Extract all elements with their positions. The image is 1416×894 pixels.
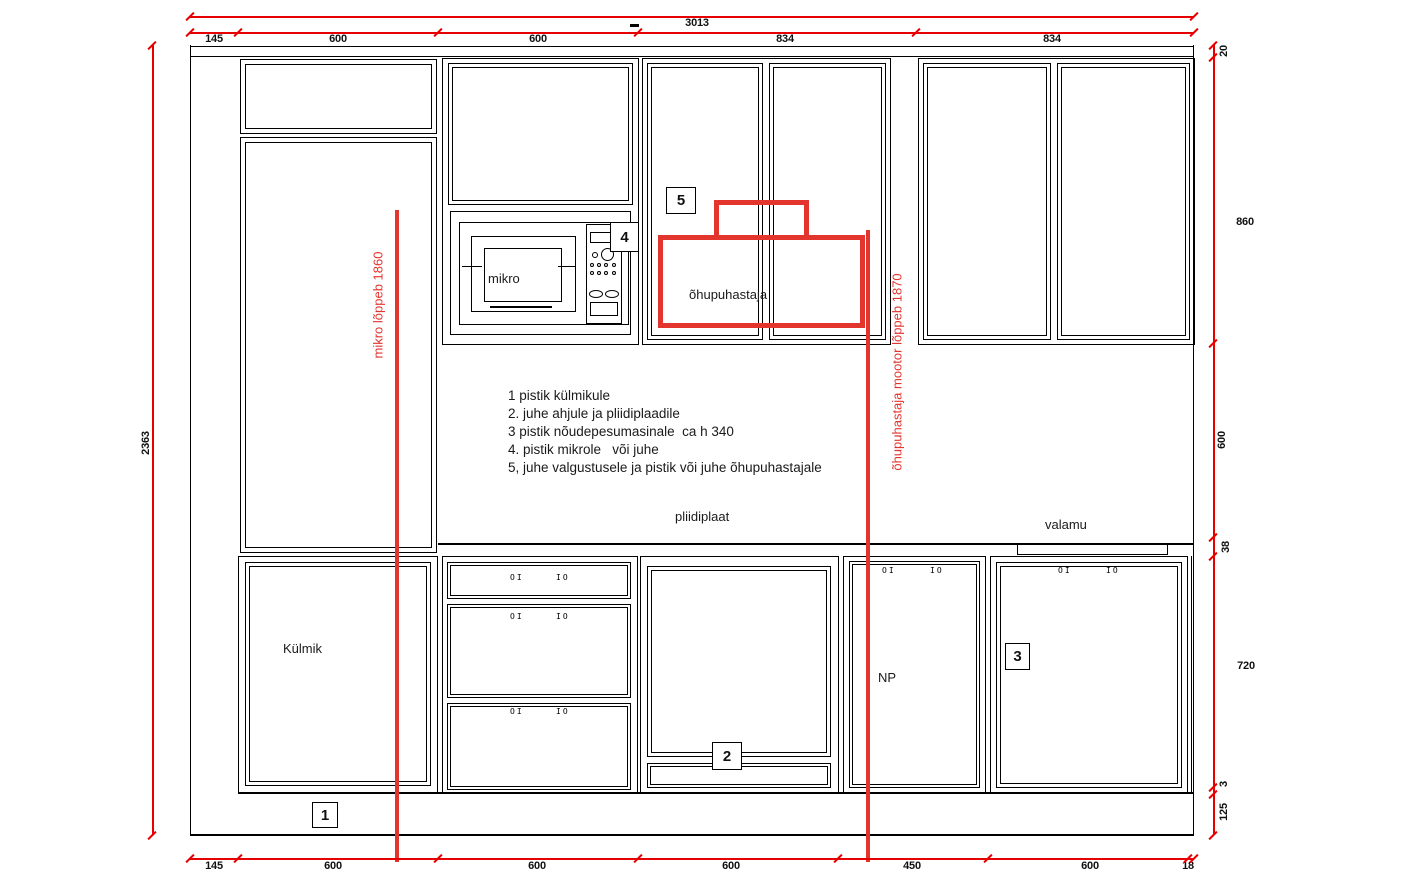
dim-right-seg: 38: [1220, 541, 1232, 553]
dim-bottom-seg: 600: [722, 860, 740, 872]
fridge-tall-door: [240, 137, 437, 553]
stray-dash: [630, 24, 639, 27]
microwave-button: [604, 271, 608, 275]
hinge-symbol: IO: [556, 573, 570, 582]
dim-right-seg: 600: [1216, 431, 1228, 449]
microwave-oval-button: [605, 290, 619, 298]
microwave-button: [590, 271, 594, 275]
hinge-symbol: IO: [556, 707, 570, 716]
callout-2: 2: [712, 742, 742, 770]
dim-bottom-seg: 600: [1081, 860, 1099, 872]
drawer-1: [447, 562, 631, 599]
microwave-trim-left: [462, 266, 482, 267]
dim-bottom-seg: 600: [324, 860, 342, 872]
floor-line: [190, 834, 1194, 836]
top-panel: [190, 46, 1194, 57]
hob-label: pliidiplaat: [675, 509, 729, 524]
callout-5: 5: [666, 187, 696, 214]
dim-top-seg: 834: [1043, 33, 1061, 45]
right-filler-line: [1191, 556, 1192, 793]
drawer-3: [447, 703, 631, 790]
plinth-line: [238, 792, 1194, 794]
dim-bottom-seg: 450: [903, 860, 921, 872]
dim-right-seg: 860: [1236, 216, 1254, 228]
hinge-symbol: OI: [510, 707, 524, 716]
dim-top-seg: 600: [529, 33, 547, 45]
dim-right-seg: 125: [1218, 803, 1230, 821]
mikro-height-line: [395, 210, 399, 862]
oven-door: [647, 566, 831, 757]
left-wall-line: [190, 45, 191, 835]
dim-line-right: [1213, 45, 1215, 835]
hood-motor-height-label: õhupuhastaja mootor lõppeb 1870: [890, 273, 905, 470]
callout-1: 1: [312, 802, 338, 828]
dim-bottom-seg: 145: [205, 860, 223, 872]
dim-top-seg: 834: [776, 33, 794, 45]
hood-chimney-outline: [714, 200, 809, 240]
microwave-label: mikro: [488, 271, 520, 286]
dim-line-left: [152, 45, 154, 835]
hinge-symbol: OI: [510, 573, 524, 582]
note-line: 3 pistik nõudepesumasinale ca h 340: [508, 424, 734, 439]
microwave-oval-button: [589, 290, 603, 298]
fridge-top-cabinet-door: [240, 59, 437, 134]
micro-column-upper-door: [448, 63, 633, 205]
upper-unit-b-door-left: [923, 63, 1051, 340]
fridge-base-door: [245, 562, 431, 786]
microwave-button: [604, 263, 608, 267]
microwave-button: [597, 271, 601, 275]
microwave-lower-panel: [590, 302, 618, 316]
dim-tick: [1208, 831, 1217, 840]
dim-tick: [147, 831, 156, 840]
fridge-label: Külmik: [283, 641, 322, 656]
note-line: 5, juhe valgustusele ja pistik või juhe …: [508, 460, 822, 475]
dim-top-total: 3013: [685, 17, 709, 29]
microwave-button: [597, 263, 601, 267]
mikro-height-label: mikro lõppeb 1860: [371, 252, 386, 359]
hood-motor-height-line: [866, 230, 870, 862]
dim-top-seg: 145: [205, 33, 223, 45]
hinge-symbol: OI: [510, 612, 524, 621]
hinge-symbol: IO: [556, 612, 570, 621]
hinge-symbol: OI: [882, 566, 896, 575]
note-line: 4. pistik mikrole või juhe: [508, 442, 659, 457]
dim-tick: [1189, 12, 1198, 21]
microwave-knob-small: [592, 252, 598, 258]
hood-body-outline: [658, 235, 865, 328]
drawer-2: [447, 604, 631, 698]
microwave-trim-right: [558, 266, 576, 267]
kitchen-elevation-drawing: 3013 145 600 600 834 834 145 600 600 600…: [0, 0, 1416, 894]
hinge-symbol: IO: [1106, 566, 1120, 575]
dim-tick: [1189, 28, 1198, 37]
callout-3: 3: [1005, 643, 1030, 670]
upper-unit-b-door-right: [1057, 63, 1190, 340]
microwave-button: [590, 263, 594, 267]
sink-rim: [1017, 544, 1168, 555]
microwave-button: [612, 263, 616, 267]
dim-right-seg: 720: [1237, 660, 1255, 672]
dim-left-total: 2363: [140, 431, 152, 455]
dishwasher-label: NP: [878, 670, 896, 685]
microwave-handle-line: [490, 306, 552, 308]
hood-label: õhupuhastaja: [689, 287, 767, 302]
dim-top-seg: 600: [329, 33, 347, 45]
sink-cabinet-door: [996, 562, 1182, 788]
dim-right-seg: 20: [1218, 45, 1230, 57]
callout-4: 4: [610, 222, 639, 252]
sink-label: valamu: [1045, 517, 1087, 532]
hinge-symbol: OI: [1058, 566, 1072, 575]
microwave-button: [612, 271, 616, 275]
dim-right-seg: 3: [1218, 781, 1230, 787]
note-line: 1 pistik külmikule: [508, 388, 610, 403]
hinge-symbol: IO: [930, 566, 944, 575]
dim-bottom-seg: 600: [528, 860, 546, 872]
note-line: 2. juhe ahjule ja pliidiplaadile: [508, 406, 680, 421]
